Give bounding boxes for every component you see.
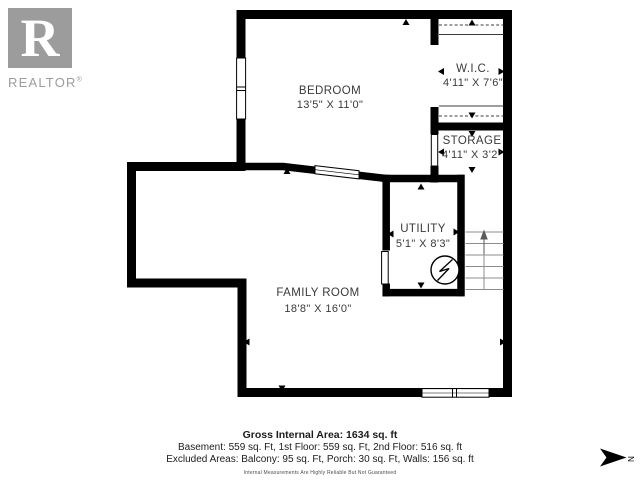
utility-dims: 5'1" X 8'3" [396,238,450,250]
wic-dims: 4'11" X 7'6" [443,77,503,89]
storage-dims: 4'11" X 3'2" [442,149,502,161]
storage-name: STORAGE [443,135,502,147]
walls [132,10,513,393]
door-utility [382,252,389,285]
area-summary: Gross Internal Area: 1634 sq. ft Basemen… [0,429,640,476]
measurement-disclaimer: Internal Measurements Are Highly Reliabl… [0,470,640,476]
gross-area-title: Gross Internal Area: 1634 sq. ft [0,429,640,441]
floor-plan: BEDROOM 13'5" X 11'0" W.I.C. 4'11" X 7'6… [0,0,640,480]
utility-name: UTILITY [400,223,446,235]
exterior-wall-outline [132,15,508,393]
family-room-name: FAMILY ROOM [276,287,359,299]
excluded-areas-line: Excluded Areas: Balcony: 95 sq. Ft, Porc… [0,454,640,465]
electrical-panel-icon [431,256,459,284]
window-family-bottom [422,389,489,398]
wic-name: W.I.C. [456,63,490,75]
bedroom-name: BEDROOM [299,85,361,97]
floor-areas-line: Basement: 559 sq. Ft, 1st Floor: 559 sq.… [0,442,640,453]
bedroom-dims: 13'5" X 11'0" [297,99,364,111]
family-room-dims: 18'8" X 16'0" [284,303,351,315]
window-bedroom-left [237,58,246,119]
door-storage [431,135,437,167]
